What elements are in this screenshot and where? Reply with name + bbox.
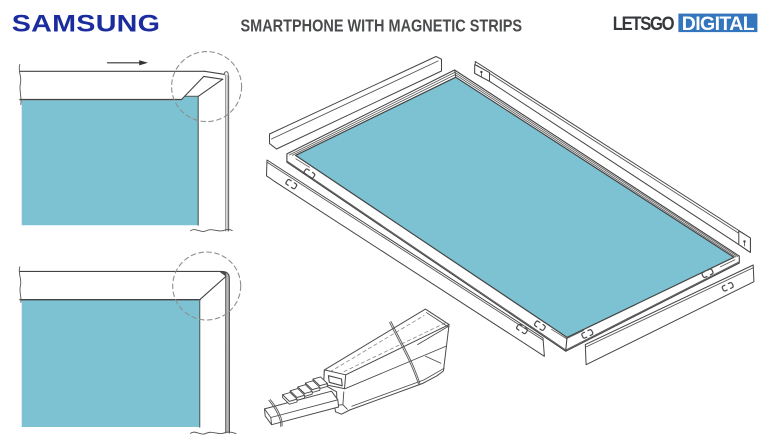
svg-text:DIGITAL: DIGITAL [682,13,755,35]
svg-text:SMARTPHONE WITH MAGNETIC STRIP: SMARTPHONE WITH MAGNETIC STRIPS [241,16,523,36]
svg-text:LETSGO: LETSGO [613,13,675,35]
svg-text:SAMSUNG: SAMSUNG [12,10,160,38]
